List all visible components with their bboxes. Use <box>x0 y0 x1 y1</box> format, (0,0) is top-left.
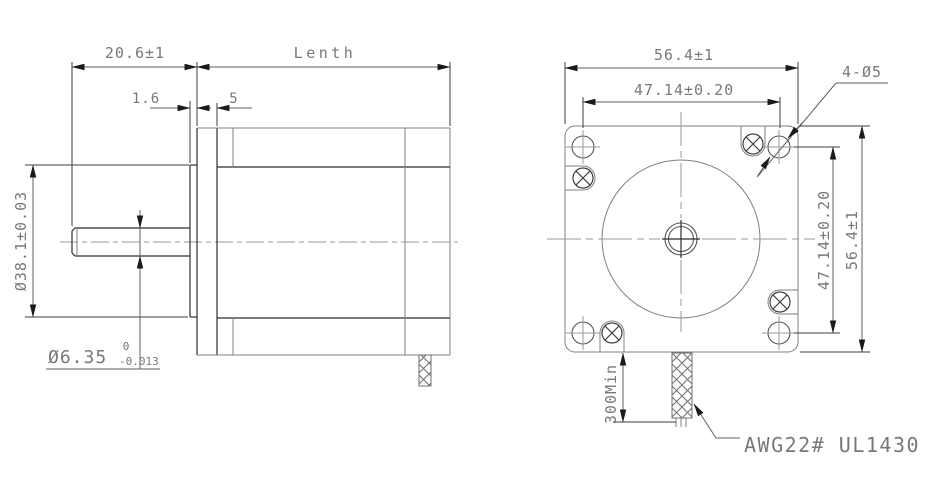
dim-pilot-depth-label: 1.6 <box>132 91 160 107</box>
dim-shaft-length-label: 20.6±1 <box>105 44 165 62</box>
dim-shaft-diameter-label: Ø6.35 <box>48 347 107 368</box>
dim-lead-length: 300Min <box>602 353 676 424</box>
dim-body-length: Lenth <box>197 44 450 126</box>
dim-body-length-label: Lenth <box>294 44 357 62</box>
lead-cable-side <box>419 355 431 386</box>
pilot-boss <box>190 165 197 317</box>
mounting-hole-bottom-left <box>566 316 600 350</box>
side-view: 20.6±1 Lenth 1.6 5 Ø38.1±0.03 <box>12 44 458 386</box>
dim-lead-length-label: 300Min <box>602 364 620 424</box>
dim-shaft-length: 20.6±1 <box>72 44 197 226</box>
dim-pilot-diameter: Ø38.1±0.03 <box>12 165 189 317</box>
dim-flange-width-label: 56.4±1 <box>654 46 714 64</box>
housing-screw-top-left <box>565 166 595 190</box>
housing-screw-top-right <box>741 126 765 156</box>
callout-lead-spec: AWG22# UL1430 <box>694 404 920 457</box>
dim-flange-thickness: 5 <box>217 91 252 126</box>
dim-shaft-diameter: Ø6.35 0 -0.013 <box>46 210 160 369</box>
shaft-hub <box>662 220 700 258</box>
housing-screw-bottom-left <box>600 321 624 352</box>
dim-hole-spacing-horizontal-label: 47.14±0.20 <box>634 81 734 99</box>
lead-cable-front <box>672 353 692 427</box>
engineering-drawing-stepper-motor: 20.6±1 Lenth 1.6 5 Ø38.1±0.03 <box>0 0 952 479</box>
dim-hole-spacing-vertical-label: 47.14±0.20 <box>815 190 833 290</box>
dim-pilot-diameter-label: Ø38.1±0.03 <box>12 191 30 291</box>
callout-mounting-holes: 4-Ø5 <box>757 63 888 177</box>
housing-screw-bottom-right <box>768 290 798 314</box>
front-view: 56.4±1 47.14±0.20 4-Ø5 47.14±0.20 <box>547 46 920 457</box>
dim-shaft-tol-lower: -0.013 <box>119 355 159 368</box>
mounting-hole-top-left <box>566 130 600 164</box>
dim-flange-height-label: 56.4±1 <box>843 210 861 270</box>
dim-hole-spacing-vertical: 47.14±0.20 <box>794 147 840 333</box>
dim-flange-thickness-label: 5 <box>229 91 238 107</box>
dim-pilot-depth: 1.6 <box>132 91 211 163</box>
callout-mounting-holes-label: 4-Ø5 <box>842 63 882 81</box>
dim-shaft-tol-upper: 0 <box>123 340 130 353</box>
callout-lead-spec-label: AWG22# UL1430 <box>744 433 920 457</box>
mounting-hole-bottom-right <box>762 316 796 350</box>
